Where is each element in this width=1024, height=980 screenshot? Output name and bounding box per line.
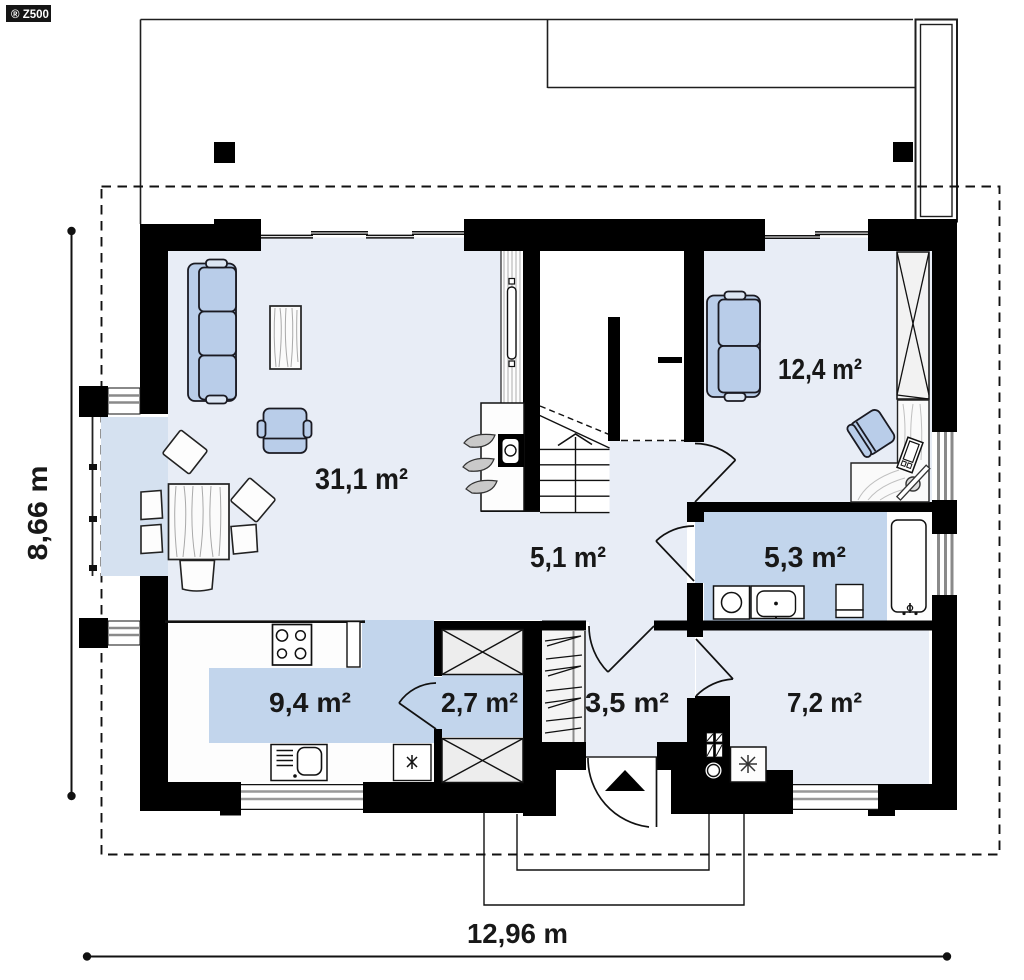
svg-text:7,2 m²: 7,2 m² (787, 687, 862, 718)
svg-text:5,3 m²: 5,3 m² (764, 542, 846, 574)
svg-text:5,1 m²: 5,1 m² (530, 542, 606, 574)
svg-text:8,66 m: 8,66 m (22, 466, 53, 561)
svg-text:® Z500: ® Z500 (11, 9, 49, 21)
svg-text:31,1 m²: 31,1 m² (315, 463, 408, 496)
svg-text:12,4 m²: 12,4 m² (778, 354, 862, 386)
svg-text:3,5 m²: 3,5 m² (585, 687, 669, 718)
svg-text:2,7 m²: 2,7 m² (441, 687, 518, 718)
svg-text:9,4 m²: 9,4 m² (269, 687, 351, 718)
svg-text:12,96 m: 12,96 m (467, 918, 568, 949)
